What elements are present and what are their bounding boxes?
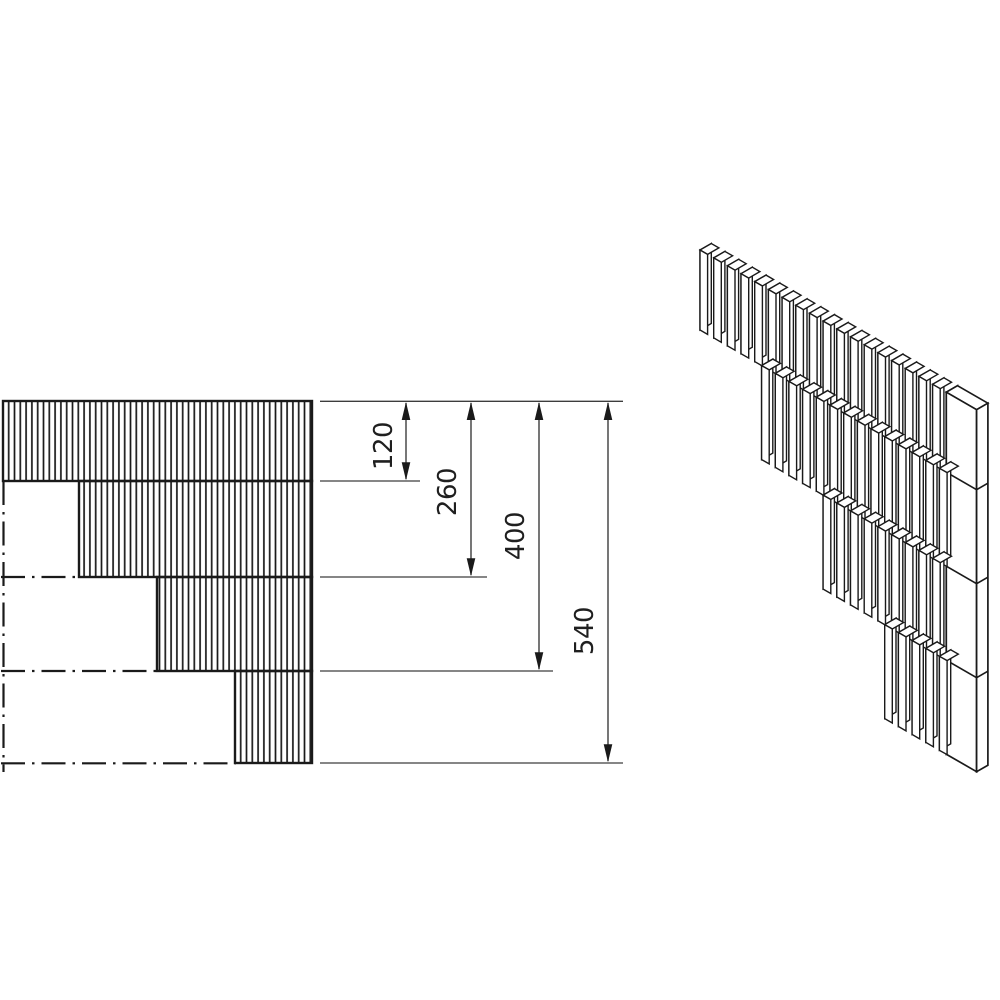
arrowhead-down: [467, 558, 476, 576]
iso-fin-face: [775, 373, 783, 471]
dimension-540: 540: [570, 402, 612, 762]
iso-fin-face: [885, 625, 893, 723]
iso-fin-face: [823, 495, 831, 593]
dimension-400: 400: [501, 402, 543, 670]
iso-fin-face: [755, 282, 763, 366]
hatched-row-3: [157, 577, 312, 671]
iso-fin-face: [864, 519, 872, 617]
dimension-label-260: 260: [433, 468, 463, 516]
iso-fin-face: [878, 527, 886, 625]
iso-fin-face: [741, 274, 749, 358]
iso-fin-face: [926, 648, 934, 746]
iso-fin-face: [851, 511, 859, 609]
iso-fin-face: [700, 250, 708, 334]
iso-fin-face: [939, 656, 947, 754]
iso-fin-face: [898, 633, 906, 731]
iso-fin-face: [912, 641, 920, 739]
dimension-260: 260: [433, 402, 475, 576]
arrowhead-up: [535, 402, 544, 420]
arrowhead-up: [604, 402, 613, 420]
hatched-row-1: [3, 401, 312, 481]
arrowhead-down: [402, 462, 411, 480]
elevation-view: [1, 401, 312, 772]
iso-fin-face: [803, 389, 811, 487]
iso-fin-face: [727, 266, 735, 350]
iso-fin-face: [816, 397, 824, 495]
iso-fin-face: [837, 503, 845, 601]
iso-fin-face: [762, 366, 770, 464]
isometric-view: [700, 244, 988, 772]
arrowhead-down: [604, 744, 613, 762]
dimension-120: 120: [369, 402, 410, 480]
arrowhead-up: [467, 402, 476, 420]
iso-fin-face: [714, 258, 722, 342]
iso-fin-face: [789, 381, 797, 479]
hatched-row-4: [235, 671, 312, 763]
dimensioning: 120 260 400 540: [320, 401, 623, 763]
hatched-row-2: [79, 481, 312, 577]
arrowhead-up: [402, 402, 411, 420]
arrowhead-down: [535, 652, 544, 670]
technical-drawing: 120 260 400 540: [0, 0, 1000, 1000]
dimension-label-120: 120: [369, 422, 399, 470]
dimension-label-540: 540: [570, 607, 600, 655]
dimension-label-400: 400: [501, 512, 531, 560]
iso-post-end-face: [977, 403, 988, 772]
